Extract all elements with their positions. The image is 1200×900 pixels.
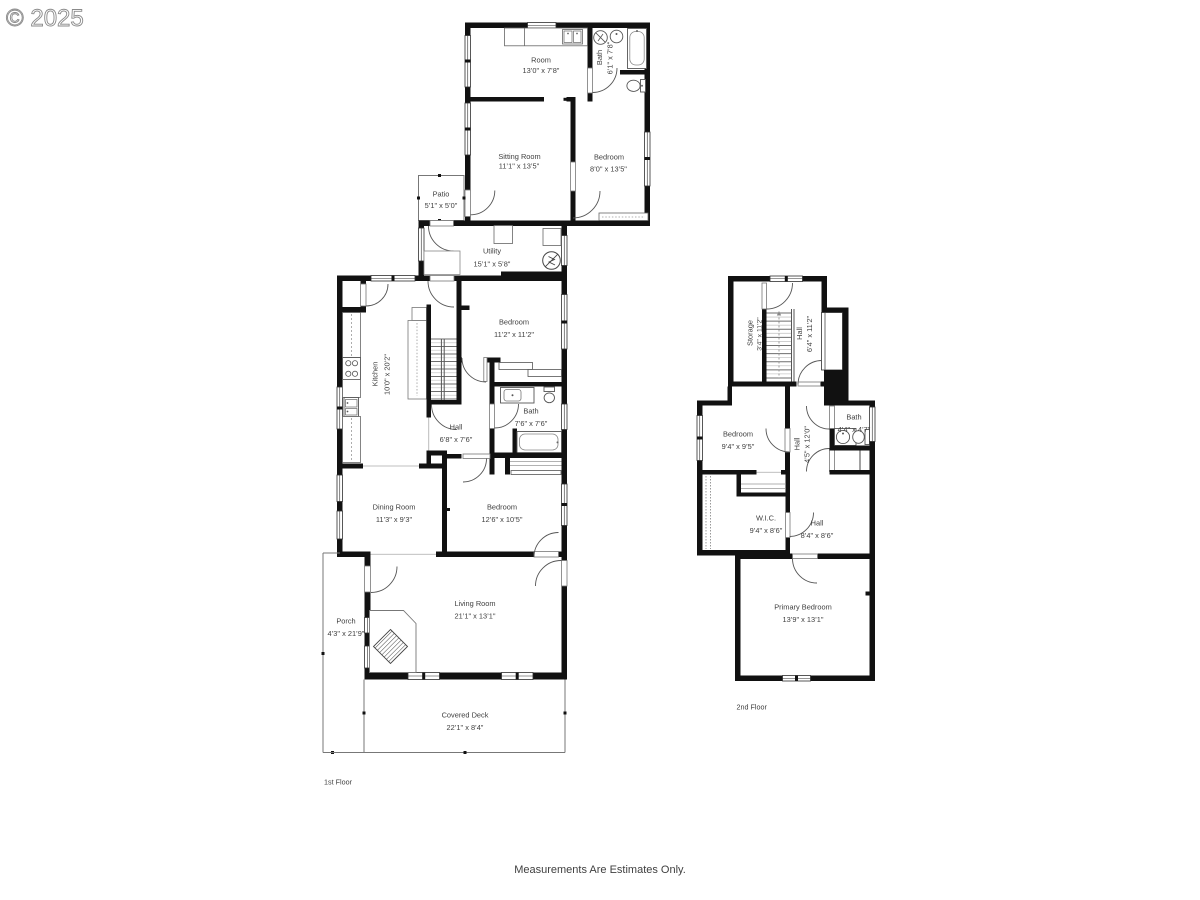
svg-text:Dining Room: Dining Room [373, 503, 416, 512]
svg-text:Bedroom: Bedroom [723, 430, 753, 439]
svg-text:6’8" x 7’6": 6’8" x 7’6" [440, 435, 473, 444]
svg-text:5’1" x 5’0": 5’1" x 5’0" [425, 201, 458, 210]
svg-text:W.I.C.: W.I.C. [756, 514, 776, 523]
svg-text:Sitting Room: Sitting Room [498, 152, 540, 161]
svg-text:15’1" x 5’8": 15’1" x 5’8" [474, 259, 511, 268]
svg-text:Bath: Bath [846, 412, 861, 421]
svg-text:Covered Deck: Covered Deck [442, 710, 489, 719]
svg-text:Primary Bedroom: Primary Bedroom [774, 603, 832, 612]
svg-text:Kitchen: Kitchen [371, 362, 380, 387]
svg-text:Bedroom: Bedroom [594, 153, 624, 162]
svg-text:13’9" x 13’1": 13’9" x 13’1" [783, 615, 824, 624]
svg-text:4’4" x 4’7": 4’4" x 4’7" [838, 425, 871, 434]
svg-text:3’4" x 11’2": 3’4" x 11’2" [757, 317, 764, 351]
svg-text:Bedroom: Bedroom [499, 318, 529, 327]
svg-text:11’2" x 11’2": 11’2" x 11’2" [494, 330, 534, 339]
svg-text:9’4" x 8’6": 9’4" x 8’6" [750, 526, 783, 535]
svg-text:22’1" x 8’4": 22’1" x 8’4" [447, 723, 484, 732]
svg-text:12’6" x 10’5": 12’6" x 10’5" [482, 515, 523, 524]
svg-text:10’0" x 20’2": 10’0" x 20’2" [383, 354, 392, 395]
svg-text:1st Floor: 1st Floor [324, 778, 353, 787]
svg-text:Patio: Patio [433, 190, 450, 199]
svg-text:Porch: Porch [336, 616, 355, 625]
svg-text:6’4" x 11’2": 6’4" x 11’2" [805, 315, 814, 352]
svg-text:Bedroom: Bedroom [487, 503, 517, 512]
svg-text:Room: Room [531, 56, 551, 65]
svg-text:Hall: Hall [795, 327, 804, 340]
svg-text:11’3" x 9’3": 11’3" x 9’3" [376, 515, 413, 524]
svg-text:9’4" x 9’5": 9’4" x 9’5" [722, 442, 755, 451]
svg-text:2nd Floor: 2nd Floor [737, 703, 768, 712]
svg-text:4’5" x 12’0": 4’5" x 12’0" [803, 426, 812, 463]
svg-text:Measurements Are Estimates Onl: Measurements Are Estimates Only. [514, 864, 686, 876]
svg-text:8’0" x 13’5": 8’0" x 13’5" [590, 165, 627, 174]
svg-text:7’6" x 7’6": 7’6" x 7’6" [515, 419, 548, 428]
svg-text:6’1" x 7’8": 6’1" x 7’8" [606, 41, 615, 74]
svg-text:Storage: Storage [746, 320, 755, 346]
svg-text:© 2025: © 2025 [6, 5, 84, 32]
svg-text:4’3" x 21’9": 4’3" x 21’9" [328, 629, 365, 638]
svg-text:Utility: Utility [483, 247, 501, 256]
svg-text:11’1" x 13’5": 11’1" x 13’5" [499, 162, 540, 171]
svg-text:Bath: Bath [523, 407, 538, 416]
svg-text:Hall: Hall [811, 519, 824, 528]
svg-text:Living Room: Living Room [454, 599, 495, 608]
svg-text:Bath: Bath [595, 50, 604, 65]
svg-text:13’0" x 7’8": 13’0" x 7’8" [523, 66, 560, 75]
svg-text:21’1" x 13’1": 21’1" x 13’1" [455, 612, 496, 621]
svg-text:Hall: Hall [793, 437, 802, 450]
svg-text:8’4" x 8’6": 8’4" x 8’6" [801, 531, 834, 540]
svg-text:Hall: Hall [450, 423, 463, 432]
